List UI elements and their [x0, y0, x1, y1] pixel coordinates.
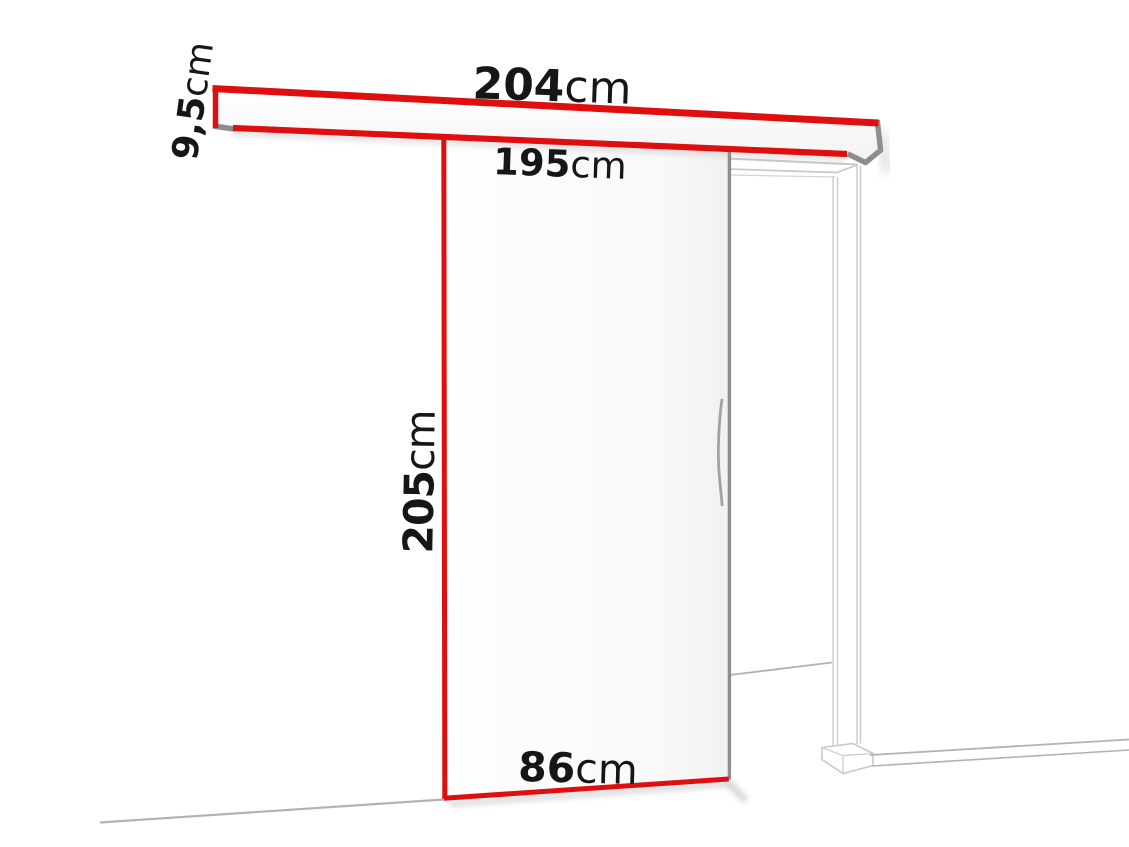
sliding-door-dimension-diagram: 204cm 195cm 9,5cm 205cm 86cm: [0, 0, 1129, 847]
frame-header-miter-line: [837, 165, 858, 173]
door-corner-shadow: [729, 783, 746, 801]
floor-line-left: [100, 800, 444, 823]
end-cap-shadow: [881, 131, 887, 172]
door-panel: [441, 134, 731, 801]
dimension-passage-width-unit: cm: [570, 143, 628, 188]
dimension-passage-width: 195cm: [493, 143, 628, 185]
dimension-rail-length-unit: cm: [564, 61, 633, 114]
dimension-door-height: 205cm: [398, 410, 441, 554]
dimension-rail-length: 204cm: [472, 62, 632, 112]
dimension-door-width: 86cm: [518, 747, 639, 791]
dimension-door-width-value: 86: [518, 743, 576, 792]
frame-base-plinth: [822, 744, 873, 774]
frame-header-inner-line: [731, 175, 835, 177]
door-panel-face: [441, 134, 731, 801]
dimension-rail-profile-height-unit: cm: [174, 39, 222, 99]
dimension-door-height-unit: cm: [396, 410, 445, 471]
dimension-rail-profile-height-value: 9,5: [165, 94, 214, 163]
door-left-edge: [444, 134, 445, 799]
door-frame: [727, 159, 873, 774]
dimension-passage-width-value: 195: [492, 140, 571, 186]
dimension-door-width-unit: cm: [575, 744, 639, 794]
dimension-rail-length-value: 204: [472, 58, 566, 112]
dimension-door-height-value: 205: [394, 471, 443, 554]
frame-header-middle-line: [727, 169, 838, 173]
floor-line-opening: [730, 663, 833, 676]
